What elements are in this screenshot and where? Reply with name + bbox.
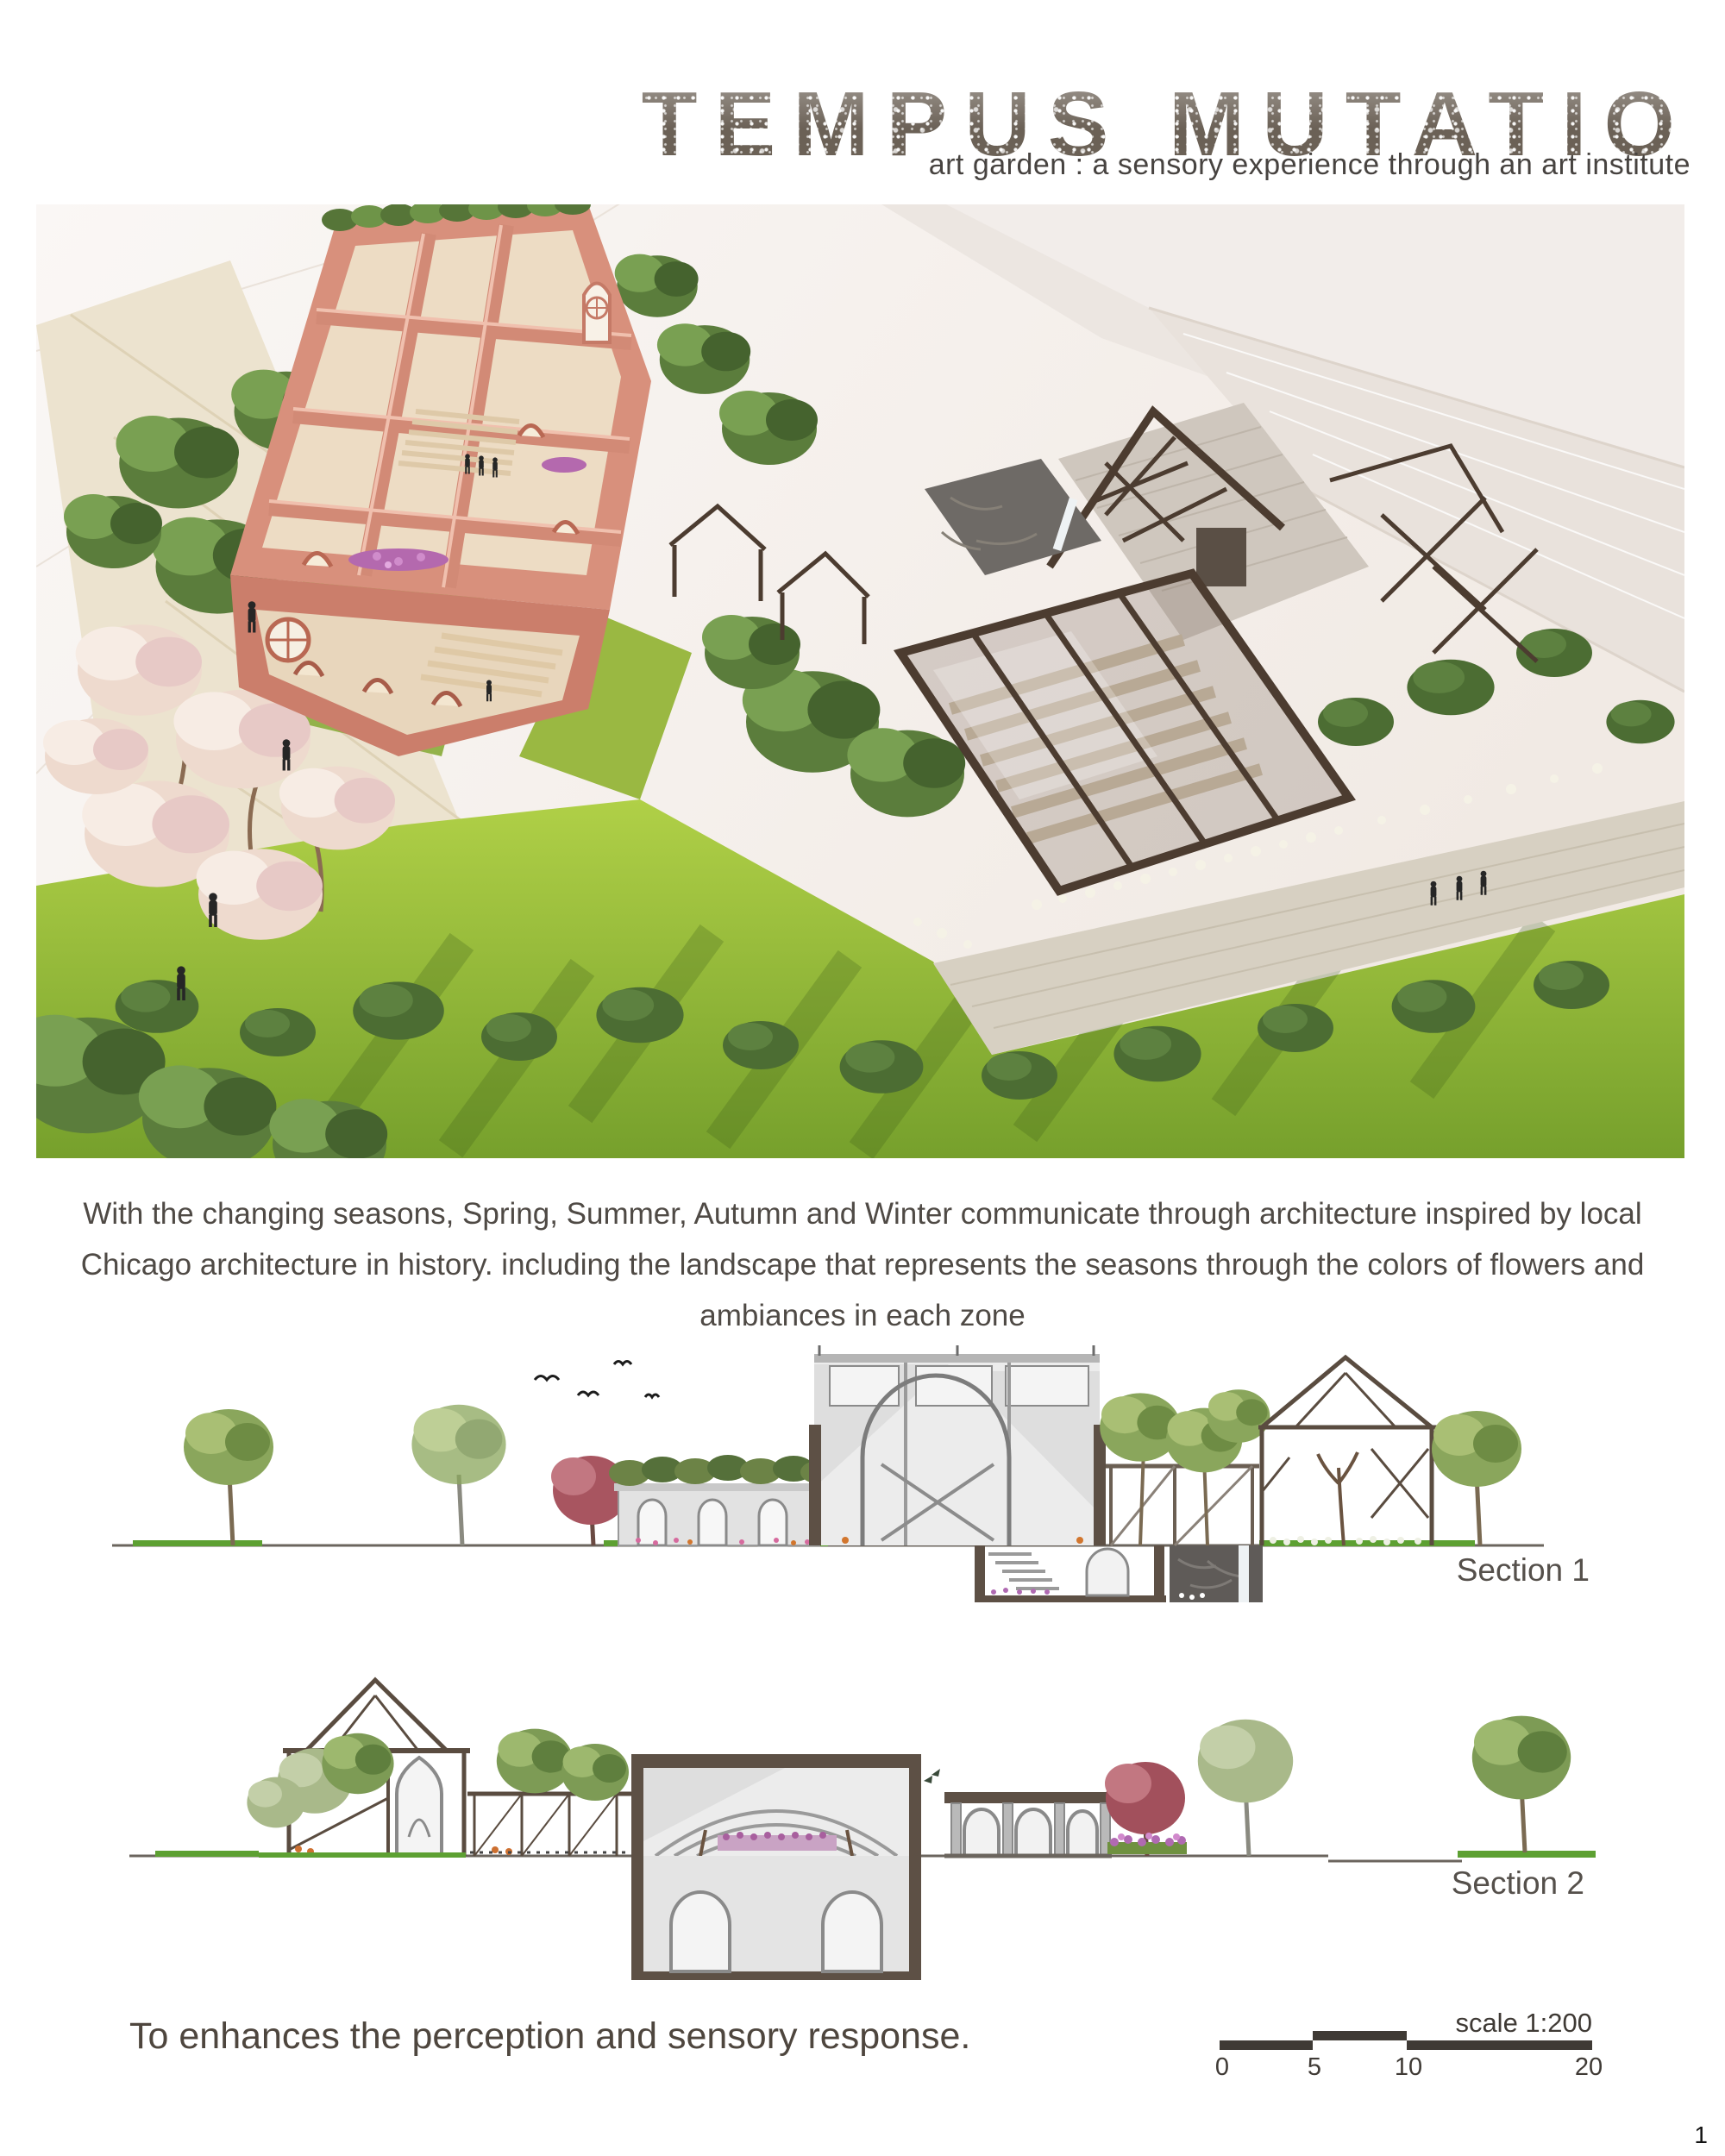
section-1-drawing: [86, 1345, 1600, 1604]
scale-tick-20: 20: [1575, 2053, 1603, 2082]
truss-corridor: [467, 1794, 631, 1856]
scale-tick-10: 10: [1395, 2053, 1422, 2082]
butterfly-icon: [924, 1769, 940, 1783]
arcade: [609, 1455, 835, 1545]
basement-stairs: [975, 1545, 1166, 1602]
page-number: 1: [1694, 2122, 1708, 2149]
page-subtitle: art garden : a sensory experience throug…: [929, 148, 1690, 182]
rock-pit: [1170, 1545, 1263, 1602]
glasshouse-tree-sculpture: [1318, 1452, 1358, 1545]
vaulted-hall-section: [631, 1754, 921, 1980]
hall-section: [809, 1345, 1106, 1545]
scale-bar-segment-1: [1220, 2040, 1313, 2050]
hero-render: [36, 204, 1684, 1158]
scale-label: scale 1:200: [1455, 2008, 1592, 2039]
glass-corridor: [1100, 1389, 1270, 1545]
glasshouse: [1258, 1357, 1438, 1545]
birds-icon: [535, 1362, 659, 1398]
description-line-3: ambiances in each zone: [0, 1290, 1725, 1341]
presentation-board: TEMPUS MUTATIO art garden : a sensory ex…: [0, 0, 1725, 2156]
scale-tick-0: 0: [1215, 2053, 1229, 2082]
right-arcade: [944, 1792, 1112, 1856]
scale-bar-segment-3: [1407, 2040, 1592, 2050]
hero-render-svg: [36, 204, 1684, 1158]
section-2-label: Section 2: [1452, 1865, 1584, 1902]
description-line-1: With the changing seasons, Spring, Summe…: [0, 1188, 1725, 1239]
section-2-drawing: [129, 1664, 1596, 1992]
description-line-2: Chicago architecture in history. includi…: [0, 1239, 1725, 1290]
description-paragraph: With the changing seasons, Spring, Summe…: [0, 1188, 1725, 1341]
scale-tick-5: 5: [1308, 2053, 1321, 2082]
closing-statement: To enhances the perception and sensory r…: [129, 2015, 970, 2058]
scale-bar-segment-2: [1313, 2031, 1407, 2040]
section-1-label: Section 1: [1457, 1552, 1590, 1589]
